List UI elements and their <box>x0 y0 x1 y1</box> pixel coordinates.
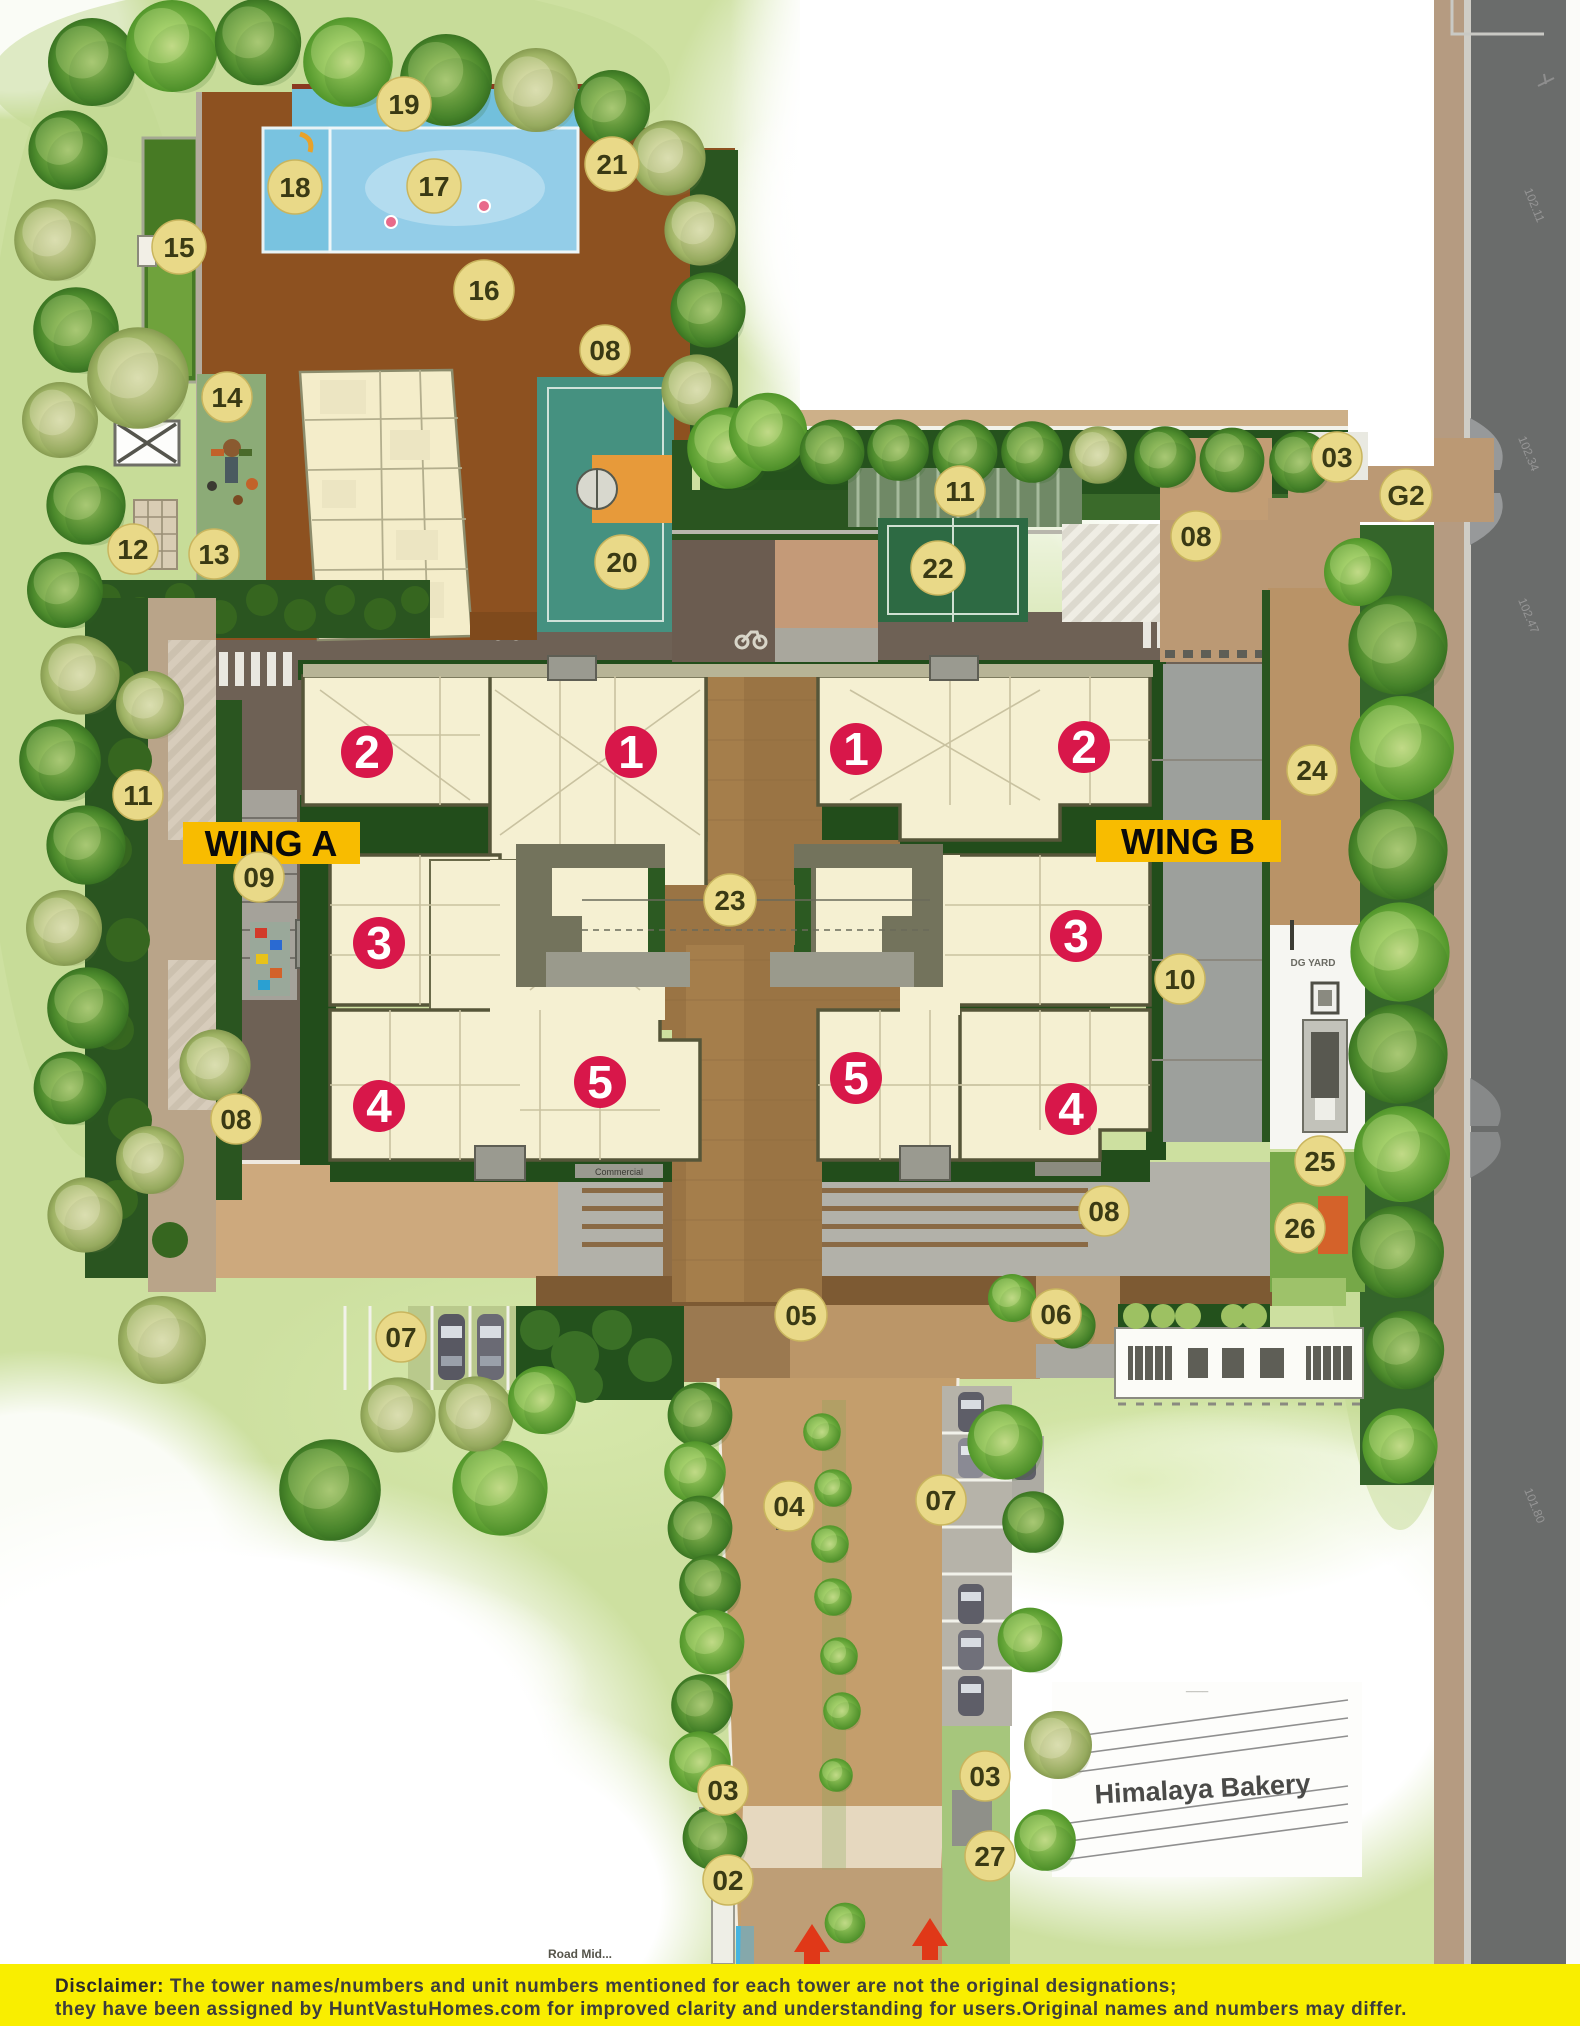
svg-text:23: 23 <box>714 885 745 916</box>
svg-text:4: 4 <box>366 1080 392 1132</box>
svg-text:5: 5 <box>843 1052 869 1104</box>
svg-text:1: 1 <box>843 723 869 775</box>
svg-text:2: 2 <box>354 726 380 778</box>
svg-text:10: 10 <box>1164 964 1195 995</box>
svg-text:5: 5 <box>587 1056 613 1108</box>
svg-text:17: 17 <box>418 171 449 202</box>
svg-text:1: 1 <box>618 726 644 778</box>
svg-text:3: 3 <box>366 917 392 969</box>
svg-text:G2: G2 <box>1387 480 1424 511</box>
svg-text:2: 2 <box>1071 721 1097 773</box>
svg-text:06: 06 <box>1040 1299 1071 1330</box>
svg-text:____: ____ <box>1185 1682 1209 1693</box>
svg-text:Commercial: Commercial <box>595 1167 643 1177</box>
svg-text:22: 22 <box>922 553 953 584</box>
svg-text:11: 11 <box>945 476 975 507</box>
svg-text:26: 26 <box>1284 1213 1315 1244</box>
svg-text:14: 14 <box>211 382 243 413</box>
svg-text:11: 11 <box>123 780 153 811</box>
svg-text:07: 07 <box>925 1485 956 1516</box>
svg-text:19: 19 <box>388 89 419 120</box>
svg-text:04: 04 <box>773 1491 805 1522</box>
svg-text:20: 20 <box>606 547 637 578</box>
svg-text:27: 27 <box>974 1841 1005 1872</box>
svg-text:18: 18 <box>279 172 310 203</box>
svg-text:Road Mid...: Road Mid... <box>548 1947 612 1961</box>
svg-text:08: 08 <box>220 1104 251 1135</box>
svg-text:08: 08 <box>589 335 620 366</box>
svg-text:3: 3 <box>1063 910 1089 962</box>
svg-text:08: 08 <box>1088 1196 1119 1227</box>
svg-text:13: 13 <box>198 539 229 570</box>
svg-text:WING B: WING B <box>1121 821 1255 862</box>
svg-text:09: 09 <box>243 862 274 893</box>
svg-text:03: 03 <box>707 1775 738 1806</box>
svg-text:08: 08 <box>1180 521 1211 552</box>
svg-text:16: 16 <box>468 275 499 306</box>
svg-text:4: 4 <box>1058 1083 1084 1135</box>
svg-text:03: 03 <box>969 1761 1000 1792</box>
svg-text:24: 24 <box>1296 755 1328 786</box>
svg-text:05: 05 <box>785 1300 816 1331</box>
svg-text:02: 02 <box>712 1865 743 1896</box>
svg-text:21: 21 <box>596 149 627 180</box>
svg-text:25: 25 <box>1304 1146 1335 1177</box>
svg-text:Disclaimer: The tower names/nu: Disclaimer: The tower names/numbers and … <box>55 1976 1177 1997</box>
svg-text:they have been assigned by Hun: they have been assigned by HuntVastuHome… <box>55 1999 1407 2020</box>
svg-text:DG YARD: DG YARD <box>1290 958 1335 969</box>
svg-text:15: 15 <box>163 232 194 263</box>
svg-text:07: 07 <box>385 1322 416 1353</box>
svg-text:12: 12 <box>117 534 148 565</box>
svg-text:03: 03 <box>1321 442 1352 473</box>
